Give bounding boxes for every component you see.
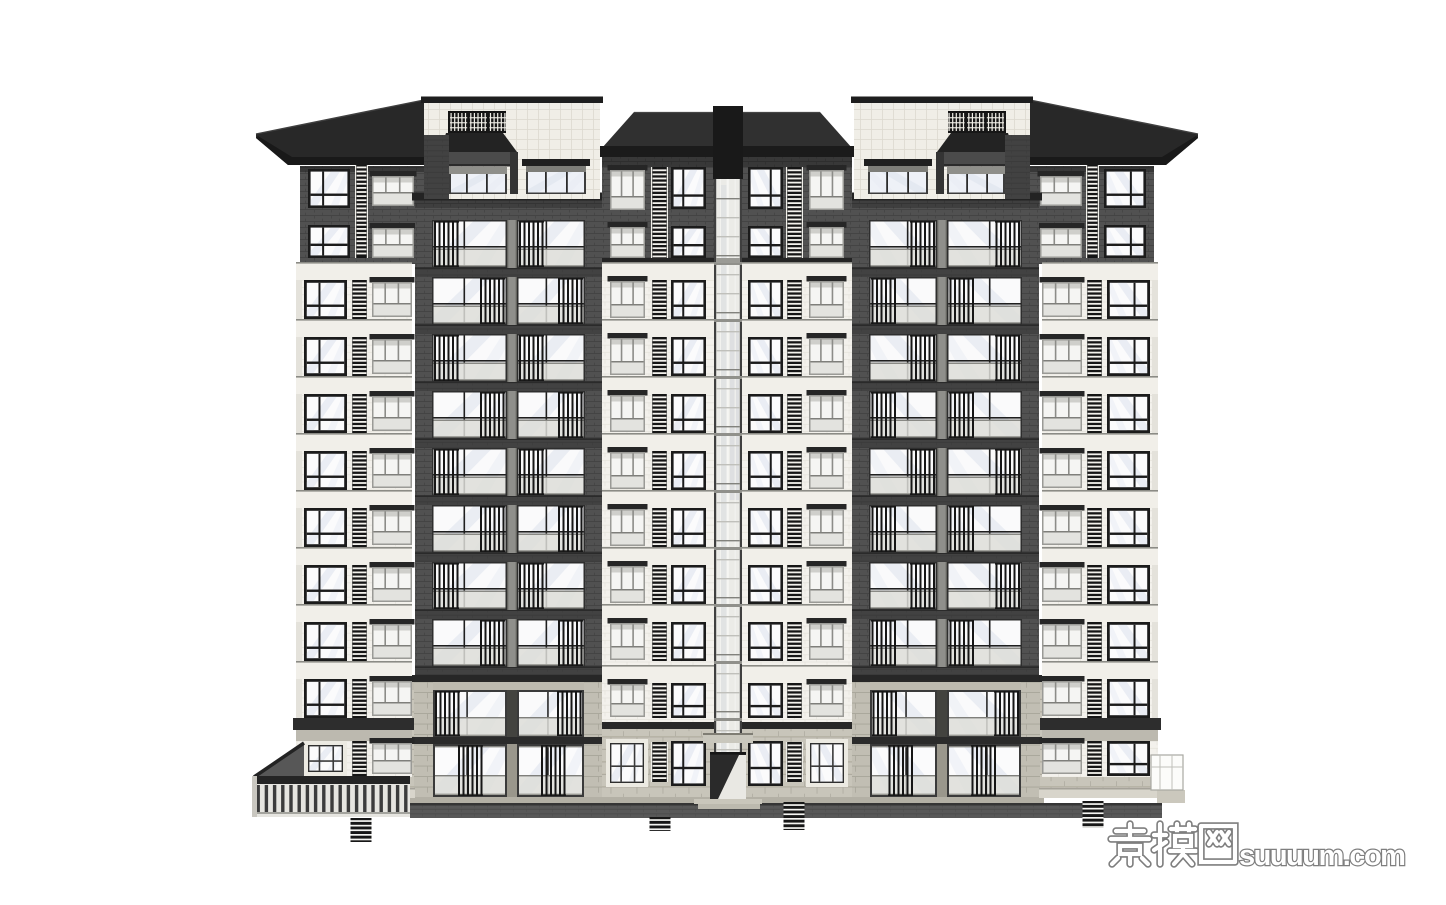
svg-text:suuuum.com: suuuum.com (1239, 840, 1404, 872)
